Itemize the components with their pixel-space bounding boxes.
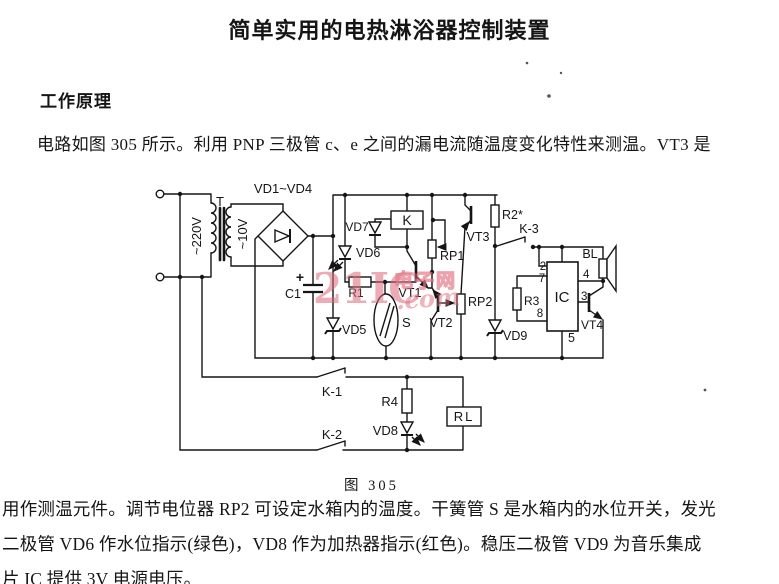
label-r1: R1 (348, 286, 364, 300)
label-ic-pin5: 5 (568, 331, 575, 345)
label-ic: IC (555, 289, 570, 306)
label-vt4: VT4 (581, 318, 603, 332)
label-rp2: RP2 (468, 295, 492, 309)
vd8-light-arrow-2 (416, 434, 424, 442)
led-vd8-icon (401, 422, 413, 433)
reed-switch-s (374, 294, 398, 346)
transformer-core (220, 208, 224, 260)
vt3-emitter-arrow (465, 222, 469, 227)
resistor-r3 (513, 288, 521, 310)
label-ic-pin3: 3 (581, 291, 587, 303)
scan-noise-specks (526, 62, 707, 392)
label-vd9: VD9 (503, 329, 527, 343)
label-secondary-voltage: ~10V (235, 218, 250, 249)
input-terminal-bottom (156, 273, 164, 281)
primary-coil (211, 203, 216, 253)
label-vd7: VD7 (345, 220, 369, 234)
led-vd6-icon (339, 246, 351, 257)
wire-relay-branch (375, 195, 432, 288)
label-bridge: VD1~VD4 (254, 181, 312, 196)
figure-caption: 图 305 (344, 474, 399, 495)
label-vt3: VT3 (467, 230, 490, 244)
speaker-bl-cone (607, 246, 616, 291)
speaker-bl-body (599, 259, 607, 278)
secondary-coil (226, 207, 231, 257)
zener-vd5-icon (327, 318, 339, 329)
label-k1: K-1 (322, 384, 342, 399)
diode-vd7-icon (369, 222, 381, 233)
body-text-line-3: 片 IC 提供 3V 电源电压。 (2, 566, 201, 584)
label-r4: R4 (381, 394, 398, 409)
body-text-line-2: 二极管 VD6 作水位指示(绿色)，VD8 作为加热器指示(红色)。稳压二极管 … (2, 531, 702, 556)
label-ic-pin4: 4 (583, 269, 590, 281)
label-vt2: VT2 (430, 316, 453, 330)
resistor-r4 (402, 389, 412, 413)
zener-vd9-icon (489, 320, 501, 331)
label-vd8: VD8 (373, 423, 398, 438)
label-rl: RL (454, 409, 475, 424)
scanned-document-page: 简单实用的电热淋浴器控制装置 工作原理 电路如图 305 所示。利用 PNP 三… (0, 0, 779, 584)
label-r2: R2* (502, 208, 523, 222)
input-terminal-top (156, 190, 164, 198)
body-text-line-1: 用作测温元件。调节电位器 RP2 可设定水箱内的温度。干簧管 S 是水箱内的水位… (2, 496, 716, 521)
label-vd5: VD5 (342, 323, 366, 337)
label-vd6: VD6 (356, 246, 380, 260)
label-vt1: VT1 (399, 286, 422, 300)
switch-blades (317, 237, 525, 450)
label-relay-k: K (402, 212, 412, 228)
label-k3: K-3 (519, 222, 539, 236)
vd8-light-arrow-1 (412, 437, 420, 445)
label-c1: C1 (285, 287, 301, 301)
label-primary-voltage: ~220V (189, 217, 204, 255)
label-bl: BL (582, 247, 597, 261)
label-k2: K-2 (322, 427, 342, 442)
resistor-r2 (491, 205, 499, 227)
label-ic-pin8: 8 (537, 308, 543, 320)
label-reed-s: S (402, 315, 411, 330)
label-r3: R3 (524, 294, 540, 308)
label-ic-pin7: 7 (539, 273, 545, 285)
label-transformer: T (216, 194, 224, 209)
label-c1-polarity: + (296, 269, 304, 285)
label-ic-pin2: 2 (540, 261, 546, 273)
potentiometer-rp2 (457, 294, 465, 314)
label-rp1: RP1 (440, 249, 464, 263)
potentiometer-rp1 (428, 240, 436, 258)
